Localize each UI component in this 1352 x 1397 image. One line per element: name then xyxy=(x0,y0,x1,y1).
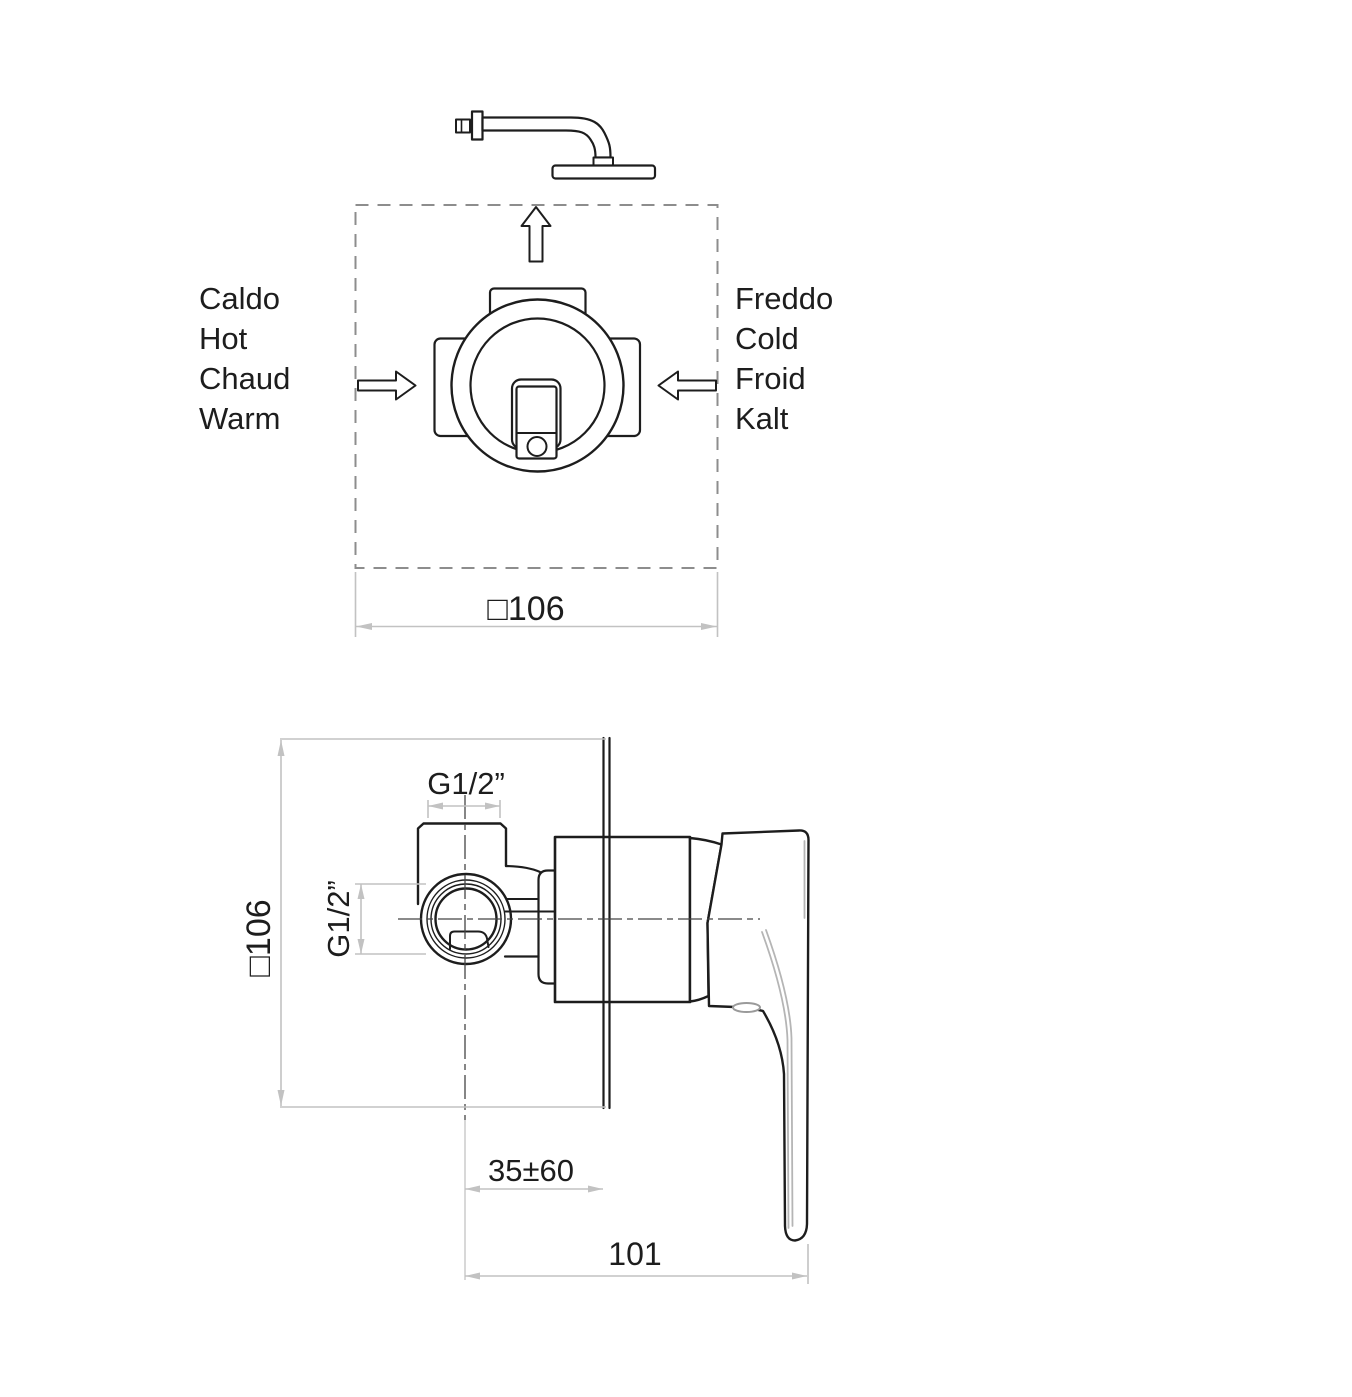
cold-labels: Freddo Cold Froid Kalt xyxy=(735,281,833,436)
hot-label-line: Chaud xyxy=(199,361,290,396)
valve-body-top-view xyxy=(435,289,641,472)
top-view: Caldo Hot Chaud Warm Freddo Cold Froid K… xyxy=(199,112,833,638)
dim-projection-value: 101 xyxy=(608,1236,661,1272)
dim-thread-side-value: G1/2” xyxy=(321,880,356,958)
up-arrow-icon xyxy=(522,207,551,262)
cold-inlet-arrow-icon xyxy=(659,372,717,400)
hot-inlet-arrow-icon xyxy=(358,372,416,400)
shower-arm-icon xyxy=(456,112,655,179)
handle-lever xyxy=(708,830,809,1240)
technical-drawing: Caldo Hot Chaud Warm Freddo Cold Froid K… xyxy=(0,0,1352,1397)
cold-label-line: Cold xyxy=(735,321,799,356)
inlet-elbow xyxy=(418,824,555,965)
technical-drawing-page: Caldo Hot Chaud Warm Freddo Cold Froid K… xyxy=(0,0,1352,1397)
cold-label-line: Froid xyxy=(735,361,806,396)
stem-screw xyxy=(528,437,547,456)
dimension-box-width: □106 xyxy=(356,572,718,637)
cartridge-flange xyxy=(539,871,557,984)
hot-label-line: Warm xyxy=(199,401,281,436)
bore-inner-detail xyxy=(450,932,489,950)
dimension-depth: 35±60 xyxy=(465,1153,603,1193)
cold-label-line: Freddo xyxy=(735,281,833,316)
hot-labels: Caldo Hot Chaud Warm xyxy=(199,281,290,436)
front-view: □106 G1/2” G1/2” 35±60 xyxy=(240,738,809,1284)
dim-width-value: □106 xyxy=(487,590,564,628)
hot-label-line: Caldo xyxy=(199,281,280,316)
dimension-projection: 101 xyxy=(465,1236,808,1284)
hot-label-line: Hot xyxy=(199,321,248,356)
handle-underside-cap xyxy=(733,1003,760,1012)
dim-plate-value: □106 xyxy=(240,899,278,976)
dim-thread-top-value: G1/2” xyxy=(427,766,505,801)
cold-label-line: Kalt xyxy=(735,401,789,436)
dimension-thread-top: G1/2” xyxy=(427,766,505,818)
dim-depth-value: 35±60 xyxy=(488,1153,574,1188)
